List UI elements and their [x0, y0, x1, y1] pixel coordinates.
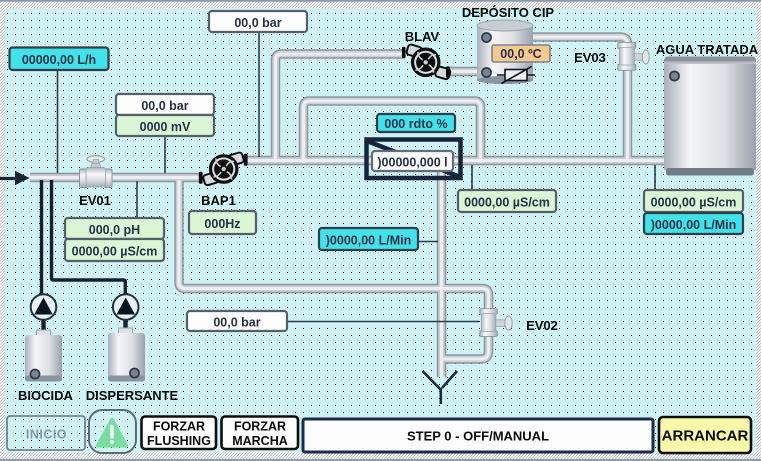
svg-text:000,0 pH: 000,0 pH [89, 223, 140, 237]
svg-text:INICIO: INICIO [26, 428, 67, 442]
svg-text:)00000,000 l: )00000,000 l [377, 156, 447, 170]
svg-text:STEP 0 - OFF/MANUAL: STEP 0 - OFF/MANUAL [407, 429, 549, 444]
svg-text:)0000,00 L/Min: )0000,00 L/Min [326, 234, 411, 248]
svg-text:BAP1: BAP1 [201, 193, 236, 208]
svg-text:0000,00 µS/cm: 0000,00 µS/cm [464, 196, 550, 210]
svg-text:EV02: EV02 [526, 318, 558, 333]
svg-text:000 rdto %: 000 rdto % [384, 117, 447, 131]
svg-text:EV03: EV03 [574, 50, 606, 65]
svg-text:MARCHA: MARCHA [232, 434, 288, 448]
svg-text:)0000,00 L/Min: )0000,00 L/Min [651, 218, 736, 232]
svg-text:FORZAR: FORZAR [153, 420, 205, 434]
svg-text:00,0 bar: 00,0 bar [234, 16, 281, 30]
svg-text:FLUSHING: FLUSHING [147, 434, 211, 448]
svg-text:BIOCIDA: BIOCIDA [18, 388, 74, 403]
svg-text:BLAV: BLAV [405, 29, 440, 44]
svg-text:ARRANCAR: ARRANCAR [662, 428, 749, 445]
svg-text:EV01: EV01 [79, 193, 111, 208]
svg-text:00,0 bar: 00,0 bar [141, 99, 188, 113]
svg-text:000Hz: 000Hz [204, 217, 240, 231]
svg-text:AGUA TRATADA: AGUA TRATADA [656, 42, 759, 57]
svg-text:00,0 ºC: 00,0 ºC [500, 47, 541, 61]
svg-text:FORZAR: FORZAR [234, 420, 286, 434]
svg-text:00,0 bar: 00,0 bar [213, 316, 260, 330]
svg-text:DEPÓSITO CIP: DEPÓSITO CIP [462, 5, 555, 20]
svg-text:0000,00 µS/cm: 0000,00 µS/cm [72, 245, 158, 259]
svg-text:DISPERSANTE: DISPERSANTE [86, 388, 179, 403]
svg-text:0000,00 µS/cm: 0000,00 µS/cm [651, 196, 737, 210]
svg-text:0000 mV: 0000 mV [140, 120, 191, 134]
svg-text:00000,00 L/h: 00000,00 L/h [22, 53, 96, 67]
